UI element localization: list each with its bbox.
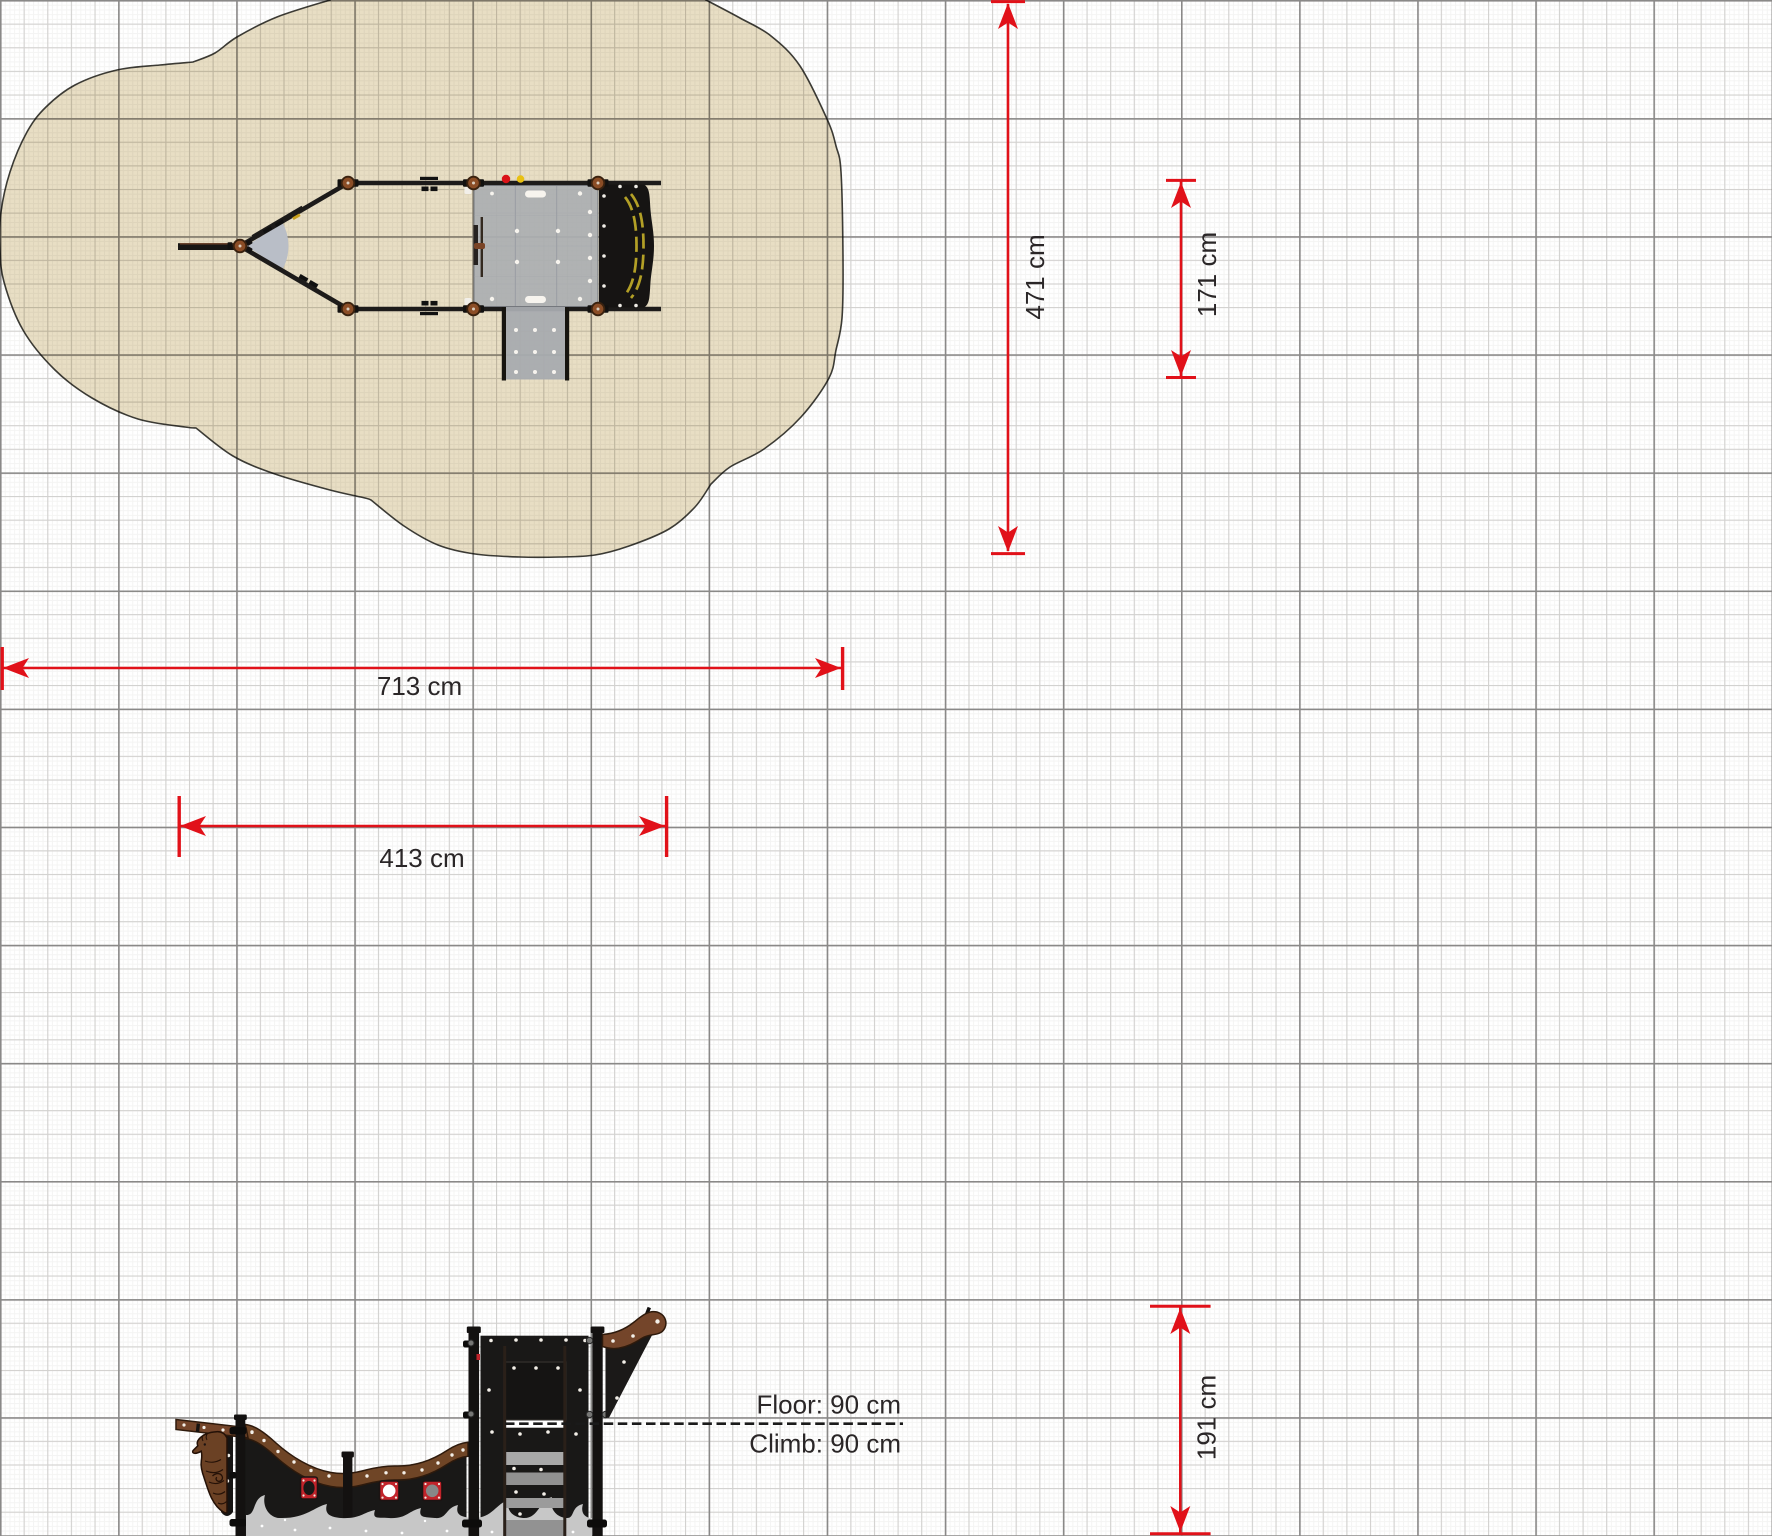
svg-text:Climb: 90 cm: Climb: 90 cm [749, 1429, 901, 1459]
svg-text:713 cm: 713 cm [377, 671, 462, 701]
svg-text:471 cm: 471 cm [1020, 234, 1050, 319]
svg-text:191 cm: 191 cm [1192, 1375, 1222, 1460]
svg-text:171 cm: 171 cm [1192, 232, 1222, 317]
svg-text:413 cm: 413 cm [379, 843, 464, 873]
svg-text:Floor: 90 cm: Floor: 90 cm [757, 1390, 902, 1420]
